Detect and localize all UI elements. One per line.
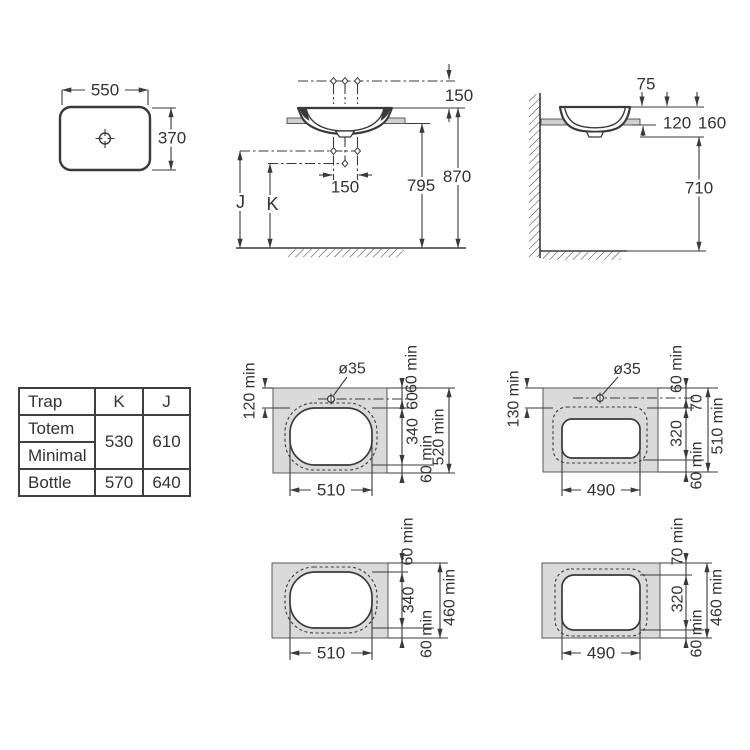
dim-label: 70 min bbox=[670, 517, 687, 565]
dim-label: 60 bbox=[405, 392, 422, 410]
floor bbox=[236, 248, 466, 257]
dim-label: 120 min bbox=[242, 363, 259, 420]
cutout-top-rect: ø35 130 min 60 min 70 320 60 min bbox=[506, 345, 727, 500]
hole-diameter-label: ø35 bbox=[338, 361, 366, 378]
dim-label: 520 min bbox=[431, 409, 448, 466]
dim-label: 510 bbox=[317, 481, 345, 500]
dim-label: 510 min bbox=[710, 398, 727, 455]
dim-label: 460 min bbox=[709, 569, 726, 626]
hole-diameter-label: ø35 bbox=[613, 361, 641, 378]
drain-outlet bbox=[587, 132, 604, 137]
dim-total-depth: 510 min bbox=[708, 388, 727, 472]
dim-counter-height-795: 795 bbox=[401, 124, 441, 249]
cutout-bottom-rect: 70 min 320 60 min 460 min 490 bbox=[542, 517, 726, 662]
table-row-bottle: Bottle 570 640 bbox=[19, 469, 190, 496]
dim-label: 370 bbox=[158, 129, 186, 148]
cutout-opening bbox=[290, 572, 372, 628]
dim-label: 340 bbox=[401, 587, 418, 614]
basin-outline bbox=[60, 107, 150, 170]
trap-name: Bottle bbox=[19, 469, 95, 496]
header-k: K bbox=[95, 388, 143, 415]
cutout-top-oval: ø35 120 min 60 min 60 340 60 min bbox=[242, 345, 456, 500]
dim-j: J bbox=[232, 151, 249, 248]
cutout-opening bbox=[562, 419, 640, 458]
j-value: 640 bbox=[143, 469, 190, 496]
dim-label: 460 min bbox=[442, 569, 459, 626]
dim-label: 60 min bbox=[689, 441, 706, 489]
k-value: 530 bbox=[95, 415, 143, 469]
dim-label: 490 bbox=[587, 644, 615, 663]
dim-label: 320 bbox=[670, 586, 687, 613]
k-value: 570 bbox=[95, 469, 143, 496]
cutout-bottom-oval: 60 min 340 60 min 460 min 510 bbox=[272, 517, 459, 662]
dim-label: 60 min bbox=[669, 345, 686, 393]
table-header-row: Trap K J bbox=[19, 388, 190, 415]
dim-faucet-spacing-150: 150 bbox=[319, 175, 372, 197]
dim-clearance-710: 710 bbox=[679, 137, 719, 251]
dim-depth-370: 370 bbox=[152, 108, 192, 170]
dim-label: 75 bbox=[637, 75, 656, 94]
dim-label: 60 min bbox=[419, 610, 436, 658]
basin-front-view: 150 870 795 J K bbox=[232, 64, 477, 257]
dim-rim-75: 75 bbox=[637, 75, 656, 106]
dimension-drawing-svg: 550 370 1 bbox=[0, 0, 750, 750]
cutout-opening bbox=[290, 408, 372, 465]
dim-label: 130 min bbox=[506, 371, 523, 428]
trap-name: Minimal bbox=[19, 442, 95, 469]
dim-label: 70 bbox=[689, 394, 706, 412]
dim-label: 795 bbox=[407, 176, 435, 195]
dim-total-depth: 520 min bbox=[431, 388, 450, 473]
dim-label: 60 min bbox=[689, 609, 706, 657]
dim-label: 150 bbox=[445, 86, 473, 105]
dim-label: 60 min bbox=[404, 345, 421, 393]
trap-dimension-table: Trap K J Totem 530 610 Minimal Bottle 57… bbox=[18, 387, 191, 497]
table-row-totem: Totem 530 610 bbox=[19, 415, 190, 442]
dim-label: 510 bbox=[317, 644, 345, 663]
basin-top-view: 550 370 bbox=[60, 81, 192, 171]
dim-label: 60 min bbox=[400, 517, 417, 565]
dim-label: K bbox=[266, 194, 278, 214]
dim-width-550: 550 bbox=[62, 81, 148, 106]
dim-depth-160: 160 bbox=[697, 92, 726, 133]
floor bbox=[540, 251, 706, 260]
dim-label: 160 bbox=[698, 114, 726, 133]
drain-outlet bbox=[336, 131, 355, 137]
header-trap: Trap bbox=[19, 388, 95, 415]
dim-label: 150 bbox=[331, 178, 359, 197]
dim-label: 870 bbox=[443, 167, 471, 186]
j-value: 610 bbox=[143, 415, 190, 469]
basin-side-view: 75 120 160 710 bbox=[529, 75, 726, 260]
dim-label: 550 bbox=[91, 81, 119, 100]
basin-technical-drawing-page: 550 370 1 bbox=[0, 0, 750, 750]
dim-total-depth: 460 min bbox=[707, 563, 726, 638]
dim-label: J bbox=[236, 192, 245, 212]
header-j: J bbox=[143, 388, 190, 415]
trap-name: Totem bbox=[19, 415, 95, 442]
dim-label: 710 bbox=[685, 179, 713, 198]
dim-total-depth: 460 min bbox=[440, 563, 459, 638]
cutout-opening bbox=[562, 575, 640, 630]
dim-counter-120: 120 bbox=[643, 92, 691, 136]
dim-label: 120 bbox=[663, 114, 691, 133]
dim-faucet-height-150: 150 bbox=[392, 64, 473, 122]
dim-k: K bbox=[264, 164, 281, 249]
dim-total-height-870: 870 bbox=[437, 108, 477, 248]
dim-label: 490 bbox=[587, 481, 615, 500]
wall bbox=[529, 93, 540, 258]
dim-label: 320 bbox=[669, 420, 686, 447]
